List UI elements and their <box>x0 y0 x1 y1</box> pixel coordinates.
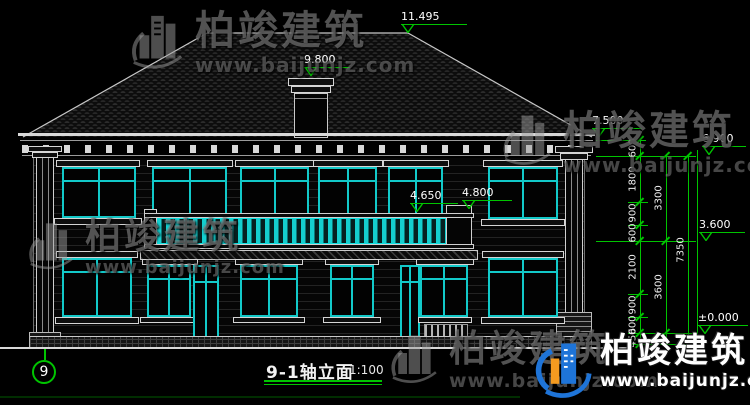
window-sill <box>140 317 198 323</box>
dimension-label: 3600 <box>654 274 665 299</box>
dimension-label: 900 <box>628 203 639 222</box>
window-head-trim <box>56 251 138 258</box>
elevation-marker-cornice: 6.900 <box>702 133 746 155</box>
dimension-label: 600 <box>628 223 639 242</box>
dimension-label: 600 <box>628 138 639 157</box>
pilaster-left-shaft <box>36 158 54 332</box>
chimney-neck <box>291 86 331 93</box>
window <box>147 265 191 317</box>
elevation-triangle-icon <box>304 67 318 76</box>
dimension-label: 450 <box>628 328 639 347</box>
elevation-triangle-icon <box>699 232 713 241</box>
window-head-trim <box>235 160 315 167</box>
window-sill <box>55 317 139 324</box>
axis-line <box>44 349 46 360</box>
window <box>62 167 136 218</box>
cad-elevation-canvas: 9 9-1轴立面 1:100 600 1800 900 600 2100 900… <box>0 0 750 405</box>
window-head-trim <box>483 160 563 167</box>
elevation-marker-ridge: 11.495 <box>401 11 467 33</box>
window-head-trim <box>56 160 140 167</box>
elevation-triangle-icon <box>401 24 415 33</box>
window <box>318 167 377 216</box>
dentil-band <box>22 145 591 153</box>
dimension-label: 900 <box>628 295 639 314</box>
axis-bubble: 9 <box>32 360 56 384</box>
elevation-marker-ground: ±0.000 <box>698 312 748 334</box>
window-head-trim <box>383 160 449 167</box>
window <box>420 265 468 317</box>
window-head-trim <box>313 160 383 167</box>
elevation-marker-floor2: 3.600 <box>699 219 745 241</box>
dimension-label: 7350 <box>676 237 687 262</box>
pilaster-right-capital <box>560 153 588 160</box>
balcony-bottom-rail <box>144 244 474 249</box>
window-sill <box>54 218 142 225</box>
level-reference-line <box>697 150 698 335</box>
elevation-triangle-icon <box>410 203 424 212</box>
elevation-value: 4.800 <box>462 187 512 199</box>
axis-number: 9 <box>40 364 49 380</box>
window-sill <box>323 317 381 323</box>
window <box>330 265 374 317</box>
window-sill <box>233 317 305 323</box>
elevation-triangle-icon <box>698 325 712 334</box>
dimension-label: 2100 <box>628 254 639 279</box>
pilaster-right-capital <box>555 146 593 153</box>
ground-line <box>0 347 630 349</box>
title-underline <box>264 380 382 382</box>
chimney-cap <box>288 78 334 86</box>
elevation-value: 3.600 <box>699 219 745 231</box>
window <box>488 258 558 317</box>
elevation-value: ±0.000 <box>698 312 748 324</box>
elevation-marker-railing: 4.650 <box>410 190 458 212</box>
window-sill <box>481 317 565 324</box>
brand-url: www.baijunjz.com <box>449 370 659 392</box>
dimension-chain-line <box>688 156 689 344</box>
elevation-marker-chimney: 9.800 <box>304 54 350 76</box>
extension-line <box>596 156 696 157</box>
window <box>240 167 309 216</box>
balcony-balusters <box>157 218 446 244</box>
window-head-trim <box>482 251 564 258</box>
title-underline <box>264 384 382 385</box>
window-head-trim <box>147 160 233 167</box>
entry-door <box>193 265 219 347</box>
pilaster-right-shaft <box>565 160 583 312</box>
window-sill <box>481 219 565 226</box>
brand-name: 柏竣建筑 <box>600 334 750 370</box>
elevation-triangle-icon <box>702 146 716 155</box>
frame-line <box>0 396 520 398</box>
brand-url: www.baijunjz.com <box>600 371 750 391</box>
entry-door <box>400 265 420 347</box>
dimension-label: 3300 <box>654 185 665 210</box>
window <box>62 258 132 317</box>
elevation-triangle-icon <box>592 128 606 137</box>
elevation-marker-post: 4.800 <box>462 187 512 209</box>
drawing-scale: 1:100 <box>349 363 384 377</box>
window <box>152 167 227 216</box>
elevation-value: 6.900 <box>702 133 746 145</box>
elevation-marker-eave: 7.500 <box>592 115 642 137</box>
chimney-body <box>294 93 328 138</box>
elevation-value: 4.650 <box>410 190 458 202</box>
window-sill <box>418 317 472 323</box>
elevation-value: 7.500 <box>592 115 642 127</box>
window <box>240 265 298 317</box>
dimension-chain-line <box>666 156 667 344</box>
dimension-label: 1800 <box>628 166 639 191</box>
elevation-value: 9.800 <box>304 54 350 66</box>
elevation-triangle-icon <box>462 200 476 209</box>
cornice <box>18 133 595 160</box>
elevation-value: 11.495 <box>401 11 467 23</box>
